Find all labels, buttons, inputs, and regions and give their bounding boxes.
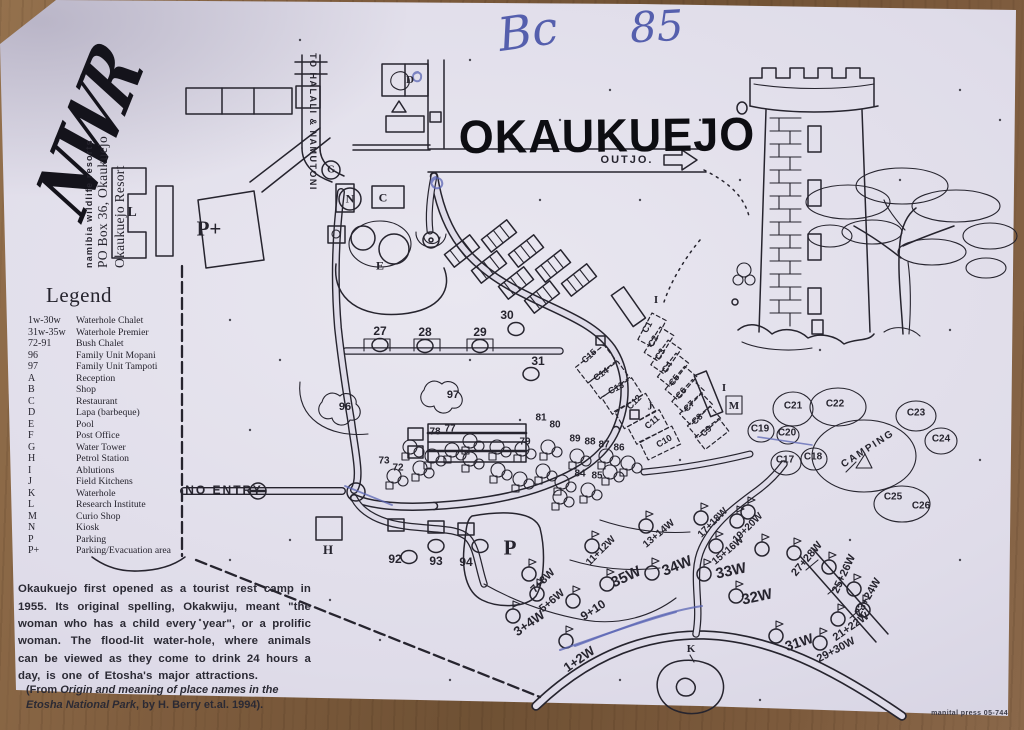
legend-label: Curio Shop	[76, 511, 120, 523]
legend-key: D	[28, 407, 76, 419]
legend-row: KWaterhole	[28, 488, 180, 500]
legend-label: Reception	[76, 373, 115, 385]
legend-title: Legend	[46, 283, 180, 308]
legend-row: MCurio Shop	[28, 511, 180, 523]
outjo-road-label: OUTJO.	[601, 154, 654, 166]
legend-row: CRestaurant	[28, 396, 180, 408]
legend-label: Petrol Station	[76, 453, 129, 465]
legend-label: Bush Chalet	[76, 338, 124, 350]
legend-label: Lapa (barbeque)	[76, 407, 140, 419]
no-entry-label: NO ENTRY	[185, 483, 263, 497]
legend-key: 72-91	[28, 338, 76, 350]
legend-items: 1w-30wWaterhole Chalet31w-35wWaterhole P…	[28, 315, 180, 557]
legend-row: 96Family Unit Mopani	[28, 350, 180, 362]
legend-row: 97Family Unit Tampoti	[28, 361, 180, 373]
handwritten-code-right: 85	[629, 1, 685, 53]
halali-road-label: TO HALALI & NAMUTONI	[308, 53, 318, 191]
legend-label: Ablutions	[76, 465, 114, 477]
legend-key: N	[28, 522, 76, 534]
legend-row: 31w-35wWaterhole Premier	[28, 327, 180, 339]
legend-row: JField Kitchens	[28, 476, 180, 488]
legend-row: BShop	[28, 384, 180, 396]
legend-key: E	[28, 419, 76, 431]
legend-row: 72-91Bush Chalet	[28, 338, 180, 350]
legend-row: P+Parking/Evacuation area	[28, 545, 180, 557]
legend-key: I	[28, 465, 76, 477]
legend-key: 1w-30w	[28, 315, 76, 327]
citation: (From Origin and meaning of place names …	[26, 683, 312, 713]
legend-label: Restaurant	[76, 396, 117, 408]
legend-key: 97	[28, 361, 76, 373]
legend-key: J	[28, 476, 76, 488]
branding-address: PO Box 36, Okaukuejo	[95, 50, 111, 268]
legend-key: L	[28, 499, 76, 511]
legend-key: P	[28, 534, 76, 546]
tent-icon	[856, 454, 872, 468]
legend-row: NKiosk	[28, 522, 180, 534]
legend-key: P+	[28, 545, 76, 557]
legend-key: K	[28, 488, 76, 500]
branding-org: namibia wildlife resorts	[84, 50, 94, 268]
legend-key: F	[28, 430, 76, 442]
legend-label: Family Unit Tampoti	[76, 361, 158, 373]
map-layer: LP+NCEDGHPKMIIJ2728293031969772737778798…	[0, 0, 1024, 730]
halali-road	[250, 55, 444, 192]
legend-row: FPost Office	[28, 430, 180, 442]
legend-key: B	[28, 384, 76, 396]
legend-label: Research Institute	[76, 499, 146, 511]
outjo-road	[428, 149, 749, 302]
branding-resort: Okaukuejo Resort	[112, 50, 128, 268]
branding-block: namibia wildlife resorts PO Box 36, Okau…	[84, 50, 128, 268]
legend-row: HPetrol Station	[28, 453, 180, 465]
legend: Legend 1w-30wWaterhole Chalet31w-35wWate…	[28, 283, 180, 557]
legend-label: Waterhole	[76, 488, 116, 500]
legend-row: IAblutions	[28, 465, 180, 477]
legend-row: 1w-30wWaterhole Chalet	[28, 315, 180, 327]
citation-prefix: (From	[26, 684, 60, 696]
legend-key: 96	[28, 350, 76, 362]
legend-key: 31w-35w	[28, 327, 76, 339]
legend-key: H	[28, 453, 76, 465]
legend-label: Family Unit Mopani	[76, 350, 156, 362]
legend-key: M	[28, 511, 76, 523]
legend-label: Post Office	[76, 430, 120, 442]
legend-label: Field Kitchens	[76, 476, 133, 488]
legend-label: Waterhole Chalet	[76, 315, 143, 327]
citation-suffix: , by H. Berry et.al. 1994).	[136, 699, 263, 711]
legend-row: AReception	[28, 373, 180, 385]
legend-label: Shop	[76, 384, 96, 396]
description-paragraph: Okaukuejo first opened as a tourist rest…	[18, 581, 311, 685]
photo-of-resort-map: LP+NCEDGHPKMIIJ2728293031969772737778798…	[0, 0, 1024, 730]
printer-note: manital press 05-744	[931, 710, 1008, 717]
legend-label: Parking	[76, 534, 106, 546]
legend-label: Waterhole Premier	[76, 327, 149, 339]
legend-brace	[92, 557, 185, 571]
legend-label: Pool	[76, 419, 94, 431]
legend-label: Parking/Evacuation area	[76, 545, 171, 557]
legend-key: G	[28, 442, 76, 454]
legend-key: A	[28, 373, 76, 385]
handwritten-code-left: Bc	[495, 0, 562, 62]
right-chalet-chain	[484, 520, 888, 642]
legend-row: LResearch Institute	[28, 499, 180, 511]
legend-row: GWater Tower	[28, 442, 180, 454]
legend-row: DLapa (barbeque)	[28, 407, 180, 419]
tree-illustration	[806, 168, 1017, 336]
camping-area	[748, 388, 957, 522]
legend-label: Kiosk	[76, 522, 99, 534]
legend-key: C	[28, 396, 76, 408]
legend-label: Water Tower	[76, 442, 126, 454]
legend-row: EPool	[28, 419, 180, 431]
legend-row: PParking	[28, 534, 180, 546]
waterhole	[657, 655, 723, 714]
